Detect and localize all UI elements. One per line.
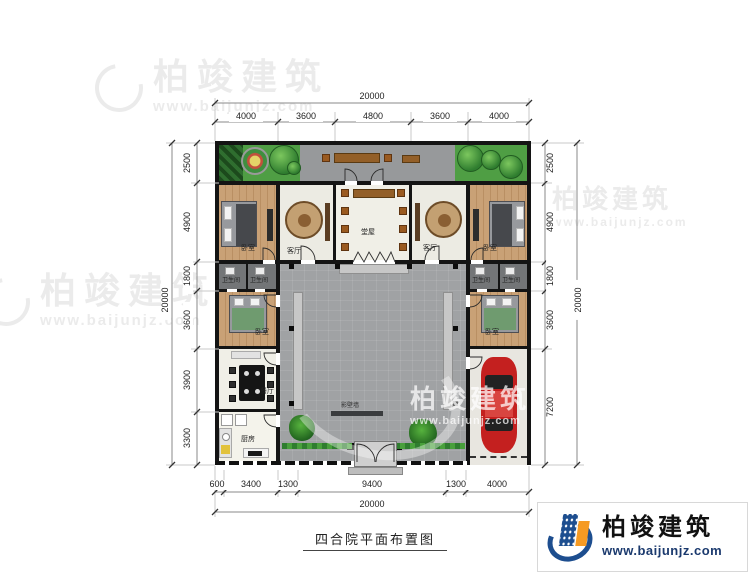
cooktop [248,451,262,456]
column [453,264,458,269]
pillow [516,206,524,220]
dim-right-seg: 7200 [546,389,556,425]
chair [229,381,236,388]
tree [287,161,301,175]
dim-total-left: 20000 [161,280,171,320]
chair [399,207,407,215]
chair [397,189,405,197]
entrance-step [348,467,403,475]
dim-left-seg: 2500 [183,145,193,181]
room-label: 卫生间 [250,278,268,284]
toilet [475,267,485,275]
door-opening [466,357,470,369]
bed [481,295,519,333]
tea-table [438,214,451,227]
door-opening [505,289,515,292]
dim-top-seg: 4800 [356,112,390,122]
cabinet [235,414,247,426]
watermark-text: 柏竣建筑 www.baijunjz.com [153,58,329,115]
porch-step [339,264,409,274]
altar-table [353,189,395,198]
room-label: 厨房 [241,436,255,443]
drawing-title: 四合院平面布置图 [303,529,447,551]
wall [219,346,276,349]
chair [341,189,349,197]
door-opening [276,353,280,365]
wall [409,185,412,260]
dim-left-seg: 1800 [183,258,193,294]
chair [341,243,349,251]
stove-counter [243,448,269,458]
room-label: 卧室 [241,245,255,252]
door-opening [227,289,237,292]
dim-bottom-seg: 4000 [480,480,514,490]
bench [402,155,420,163]
dim-right-seg: 1800 [546,258,556,294]
toilet [225,267,235,275]
entrance-gate [354,441,397,467]
tree [481,150,501,170]
room-label: 卧室 [485,329,499,336]
toilet [255,267,265,275]
room-label: 卫生间 [472,278,490,284]
north-walkway [300,145,455,181]
dim-left-seg: 3600 [183,302,193,338]
dim-bottom-seg: 3400 [234,480,268,490]
porch-step [293,292,303,410]
room-label: 影壁墙 [341,403,359,409]
pillow [486,298,496,306]
room-label: 客厅 [423,245,437,252]
dim-left-seg: 3900 [183,362,193,398]
door-opening [276,415,280,427]
door-opening [263,260,275,264]
dim-bottom-seg: 1300 [439,480,473,490]
plate [244,371,249,376]
column [289,264,294,269]
screen-wall [331,411,383,416]
tv-cabinet [267,209,273,241]
door-opening [301,260,315,264]
door-opening [371,181,383,185]
tv-cabinet [473,209,479,241]
fridge [221,414,233,426]
dim-bottom-seg: 600 [205,480,229,490]
wall [470,346,527,349]
rear-window [485,419,513,431]
dim-top-seg: 3600 [423,112,457,122]
chair [341,207,349,215]
door-opening [255,289,265,292]
pillow [250,298,260,306]
car-roof [485,391,513,417]
car [481,357,517,453]
bed [221,201,257,247]
shrub-patch [219,145,243,181]
dim-left-seg: 4900 [183,204,193,240]
room-label: 餐厅 [260,388,274,395]
room-label: 卧室 [255,329,269,336]
chair [267,367,274,374]
watermark-brand: 柏竣建筑 [552,186,688,213]
pillow [224,228,232,242]
wall [466,181,470,461]
chair [322,154,330,162]
bed [489,201,525,247]
dim-right-seg: 3600 [546,302,556,338]
column [453,401,458,406]
dim-bottom-seg: 1300 [271,480,305,490]
column [335,264,340,269]
round-sofa [425,201,462,238]
dim-left-seg: 3300 [183,420,193,456]
room-label: 卫生间 [502,278,520,284]
watermark-logo-icon [86,55,153,122]
door-opening [353,260,395,264]
chair [384,154,392,162]
dim-top-seg: 4000 [229,112,263,122]
chair [399,225,407,233]
pillow [234,298,244,306]
brand-name: 柏竣建筑 [602,516,722,540]
dim-top-seg: 3600 [289,112,323,122]
dim-bottom-seg: 9400 [355,480,389,490]
plate [244,389,249,394]
pillow [224,206,232,220]
console-table [334,153,380,163]
room-label: 客厅 [287,248,301,255]
room-label: 堂屋 [361,229,375,236]
column [407,264,412,269]
bed [229,295,267,333]
flower-bed [241,147,269,175]
round-sofa [285,201,323,239]
column [453,326,458,331]
chair [267,395,274,402]
tree [499,155,523,179]
dim-total-bottom: 20000 [352,500,392,510]
pillow [516,228,524,242]
door-opening [345,181,357,185]
watermark: 柏竣建筑 www.baijunjz.com [95,58,329,115]
blanket [484,308,516,330]
wall [219,409,276,412]
column [289,326,294,331]
plant [289,415,315,441]
tea-table [298,214,311,227]
garden-left [219,145,300,181]
room-label: 卫生间 [222,278,240,284]
watermark-logo-icon [0,269,39,336]
garage-door [470,456,527,465]
wall [246,264,248,289]
dim-right-seg: 4900 [546,204,556,240]
chair [229,367,236,374]
dim-top-seg: 4000 [482,112,516,122]
blanket [236,204,256,246]
tv-cabinet [415,203,420,241]
tree [457,145,484,172]
brand-text: 柏竣建筑 www.baijunjz.com [602,516,722,558]
counter-item [221,445,230,454]
garden-right [455,145,527,181]
chair [341,225,349,233]
blanket [232,308,264,330]
floor-plan: 影壁墙 卧室 客厅 堂屋 [215,141,531,465]
dining-table [239,365,265,401]
brand-url[interactable]: www.baijunjz.com [602,543,722,558]
column [289,401,294,406]
door-opening [466,295,470,307]
green-strip [395,443,465,449]
blanket [492,204,512,246]
wall [498,264,500,289]
toilet [505,267,515,275]
chair [229,395,236,402]
door-opening [276,295,280,307]
page: 柏竣建筑 www.baijunjz.com 柏竣建筑 www.baijunjz.… [0,0,750,576]
dim-right-seg: 2500 [546,145,556,181]
watermark-brand: 柏竣建筑 [153,58,329,96]
pillow [502,298,512,306]
brand-footer[interactable]: 柏竣建筑 www.baijunjz.com [537,502,748,572]
chair [399,243,407,251]
sink [222,433,230,441]
room-label: 卧室 [483,245,497,252]
wall [333,185,336,260]
tv-cabinet [325,203,330,241]
watermark: 柏竣建筑 www.baijunjz.com [552,186,688,229]
door-opening [477,289,487,292]
dim-total-right: 20000 [574,280,584,320]
green-strip [282,443,352,449]
sideboard [231,351,261,359]
brand-logo-icon [546,509,596,565]
porch-step [443,292,453,410]
chair [267,381,274,388]
windshield [485,375,513,389]
dim-total-top: 20000 [352,92,392,102]
watermark-text: 柏竣建筑 www.baijunjz.com [552,186,688,229]
watermark-url: www.baijunjz.com [552,215,688,229]
door-opening [425,260,439,264]
plate [255,371,260,376]
door-opening [471,260,483,264]
